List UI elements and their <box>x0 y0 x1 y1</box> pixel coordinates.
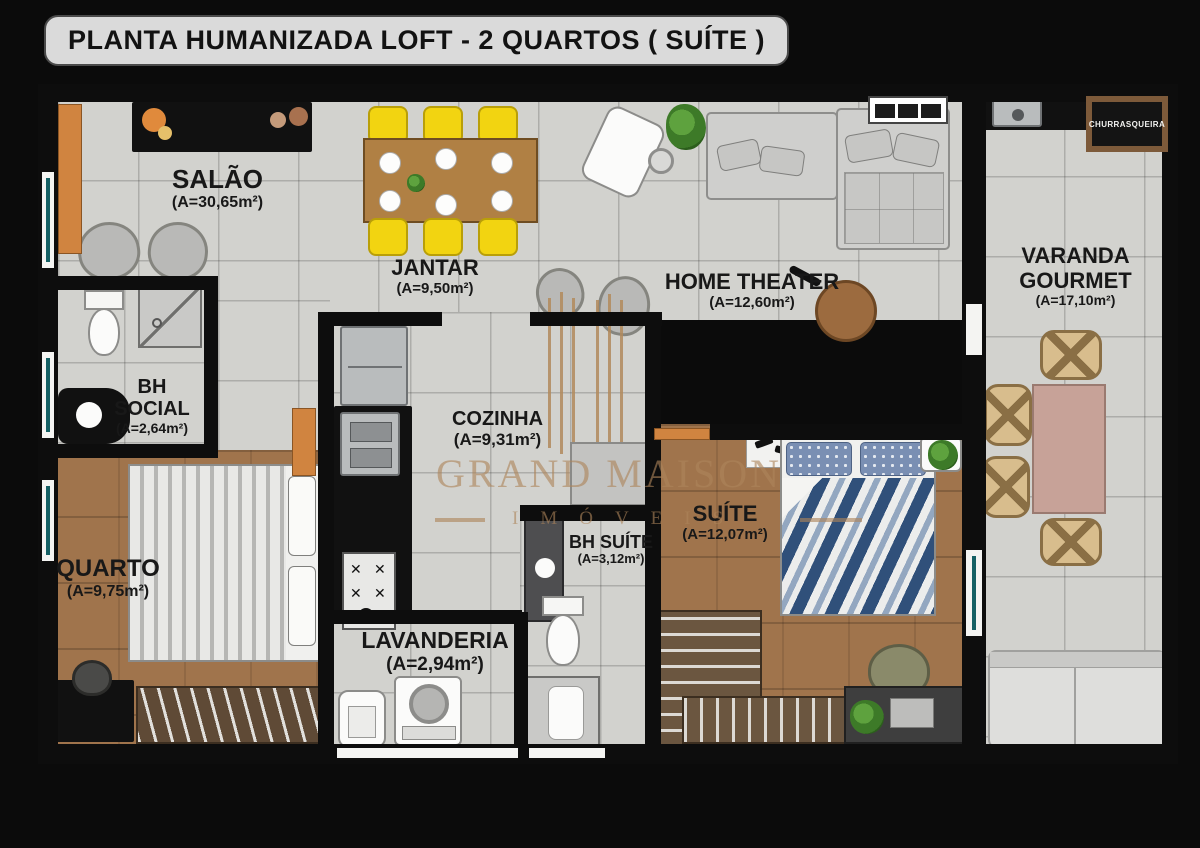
air-conditioner <box>868 96 948 124</box>
room-area: (A=9,50m²) <box>355 281 515 298</box>
entry-cabinet <box>58 104 82 254</box>
door-bh-social <box>292 408 316 476</box>
label-varanda: VARANDA GOURMET (A=17,10m²) <box>998 244 1153 309</box>
wall-bh-social-right <box>204 276 218 456</box>
burner-icon: ✕ <box>374 562 388 576</box>
sofa-throw-blanket <box>844 172 944 244</box>
shower-corner <box>138 286 202 348</box>
suite-duvet <box>782 478 934 614</box>
suite-desk-plant <box>850 700 884 734</box>
varanda-table <box>1032 384 1106 514</box>
label-jantar: JANTAR (A=9,50m²) <box>355 256 515 297</box>
label-lavanderia: LAVANDERIA (A=2,94m²) <box>345 628 525 675</box>
room-name: BH SUÍTE <box>568 532 654 552</box>
wall-bh-social-bottom <box>38 444 218 458</box>
plan-title: PLANTA HUMANIZADA LOFT - 2 QUARTOS ( SUÍ… <box>44 15 789 66</box>
wall-laundry-top <box>322 610 522 624</box>
label-bh-social: BH SOCIAL (A=2,64m²) <box>102 376 202 436</box>
washer-drum <box>409 684 449 724</box>
dining-chair-4 <box>368 218 408 256</box>
label-cozinha: COZINHA (A=9,31m²) <box>415 408 580 449</box>
burner-icon: ✕ <box>350 562 364 576</box>
varanda-sink <box>992 99 1042 127</box>
label-home-theater: HOME THEATER (A=12,60m²) <box>652 270 852 311</box>
label-salao: SALÃO (A=30,65m²) <box>135 165 300 212</box>
toilet-tank-suite <box>542 596 584 616</box>
rattan-chair-top <box>1040 330 1102 380</box>
wall-bh-suite-top <box>520 505 660 521</box>
room-name: HOME THEATER <box>652 270 852 295</box>
label-suite: SUÍTE (A=12,07m²) <box>660 502 790 543</box>
decor-bowl-gold <box>158 126 172 140</box>
room-area: (A=30,65m²) <box>135 194 300 212</box>
table-centerpiece-plant <box>407 174 425 192</box>
suite-pillow-blue <box>786 442 852 476</box>
room-name: SUÍTE <box>660 502 790 527</box>
room-area: (A=9,31m²) <box>415 430 580 449</box>
plate <box>491 152 513 174</box>
varanda-sofa <box>988 650 1166 748</box>
ac-vents <box>875 104 941 118</box>
label-quarto: QUARTO (A=9,75m²) <box>44 556 172 601</box>
sofa-pillow <box>758 145 805 177</box>
wall-top <box>38 84 1168 102</box>
watermark-dash-right <box>800 518 862 522</box>
sofa-back <box>990 652 1164 668</box>
burner-icon: ✕ <box>374 586 388 600</box>
toilet-suite <box>546 614 580 666</box>
room-area: (A=17,10m²) <box>998 293 1153 309</box>
rattan-chair-left-1 <box>984 384 1032 446</box>
room-area: (A=3,12m²) <box>568 552 654 567</box>
dining-chair-6 <box>478 218 518 256</box>
plate <box>491 190 513 212</box>
plant-living <box>666 104 706 150</box>
suite-plant <box>928 440 958 470</box>
media-console <box>132 102 312 152</box>
toilet-social <box>88 308 120 356</box>
cushion-divider <box>1074 668 1076 746</box>
tub-basin <box>348 706 376 738</box>
watermark-dash-left <box>435 518 485 522</box>
dining-chair-5 <box>423 218 463 256</box>
kitchen-island <box>570 442 648 506</box>
sofa-pillow <box>844 128 894 164</box>
kitchen-sink <box>340 412 400 476</box>
room-area: (A=2,94m²) <box>345 654 525 675</box>
fridge-divider <box>348 366 402 368</box>
room-name: SALÃO <box>135 165 300 194</box>
rattan-chair-bottom <box>1040 518 1102 566</box>
window-divider-1 <box>964 302 984 357</box>
wall-right <box>1162 84 1178 764</box>
rattan-chair-left-2 <box>982 456 1030 518</box>
plate <box>435 194 457 216</box>
room-area: (A=9,75m²) <box>44 583 172 601</box>
door-suite <box>654 428 710 440</box>
wall-suite-top <box>710 424 968 440</box>
window-bottom-laundry <box>335 746 520 760</box>
toilet-tank <box>84 290 124 310</box>
quarto-wardrobe <box>136 686 322 744</box>
room-name: COZINHA <box>415 408 580 430</box>
wall-kitchen-left <box>318 312 334 752</box>
decor-bowl-brown <box>289 107 308 126</box>
suite-pillow-blue <box>860 442 926 476</box>
burner-icon: ✕ <box>350 586 364 600</box>
sink-bowl <box>535 558 555 578</box>
room-name: LAVANDERIA <box>345 628 525 654</box>
plate <box>379 152 401 174</box>
room-name: BH SOCIAL <box>102 376 202 421</box>
sofa-left-section <box>706 112 838 200</box>
shower-drain <box>152 318 162 328</box>
churrasqueira-sign: CHURRASQUEIRA <box>1086 96 1168 152</box>
sink-drain <box>1012 109 1024 121</box>
floor-plan-canvas: PLANTA HUMANIZADA LOFT - 2 QUARTOS ( SUÍ… <box>0 0 1200 848</box>
quarto-desk-chair <box>72 660 112 696</box>
room-area: (A=12,07m²) <box>660 527 790 544</box>
wall-kitchen-top-right <box>530 312 662 326</box>
window-bottom-bh <box>527 746 607 760</box>
floor-lamp <box>648 148 674 174</box>
decor-bowl-tan <box>270 112 286 128</box>
dining-table <box>363 138 538 223</box>
refrigerator <box>340 326 408 406</box>
plate <box>435 148 457 170</box>
wall-kitchen-top-left <box>322 312 442 326</box>
wall-bh-social-top <box>38 276 218 290</box>
sink-basin <box>350 422 392 442</box>
room-name: VARANDA GOURMET <box>998 244 1153 293</box>
shower-tray <box>548 686 584 740</box>
quarto-pillow <box>288 566 316 646</box>
washer-controls <box>402 726 456 740</box>
suite-bed <box>780 436 936 616</box>
wall-varanda-divider <box>962 84 986 760</box>
window-divider-2-glass <box>972 556 976 630</box>
room-name: JANTAR <box>355 256 515 281</box>
room-area: (A=12,60m²) <box>652 295 852 312</box>
room-name: QUARTO <box>44 556 172 583</box>
plate <box>379 190 401 212</box>
room-area: (A=2,64m²) <box>102 421 202 437</box>
quarto-pillow <box>288 476 316 556</box>
shower-suite <box>524 676 600 746</box>
sofa-chaise-section <box>836 108 950 250</box>
window-left-2-glass <box>46 358 50 432</box>
window-left-1-glass <box>46 178 50 262</box>
laptop <box>890 698 934 728</box>
churrasqueira-label: CHURRASQUEIRA <box>1089 120 1165 129</box>
label-bh-suite: BH SUÍTE (A=3,12m²) <box>568 532 654 567</box>
sink-basin <box>350 448 392 468</box>
washing-machine <box>394 676 462 746</box>
window-left-3-glass <box>46 486 50 555</box>
sofa-pillow <box>892 132 941 169</box>
laundry-tub <box>338 690 386 748</box>
sink-bowl <box>76 402 102 428</box>
sofa-pillow <box>716 138 762 172</box>
